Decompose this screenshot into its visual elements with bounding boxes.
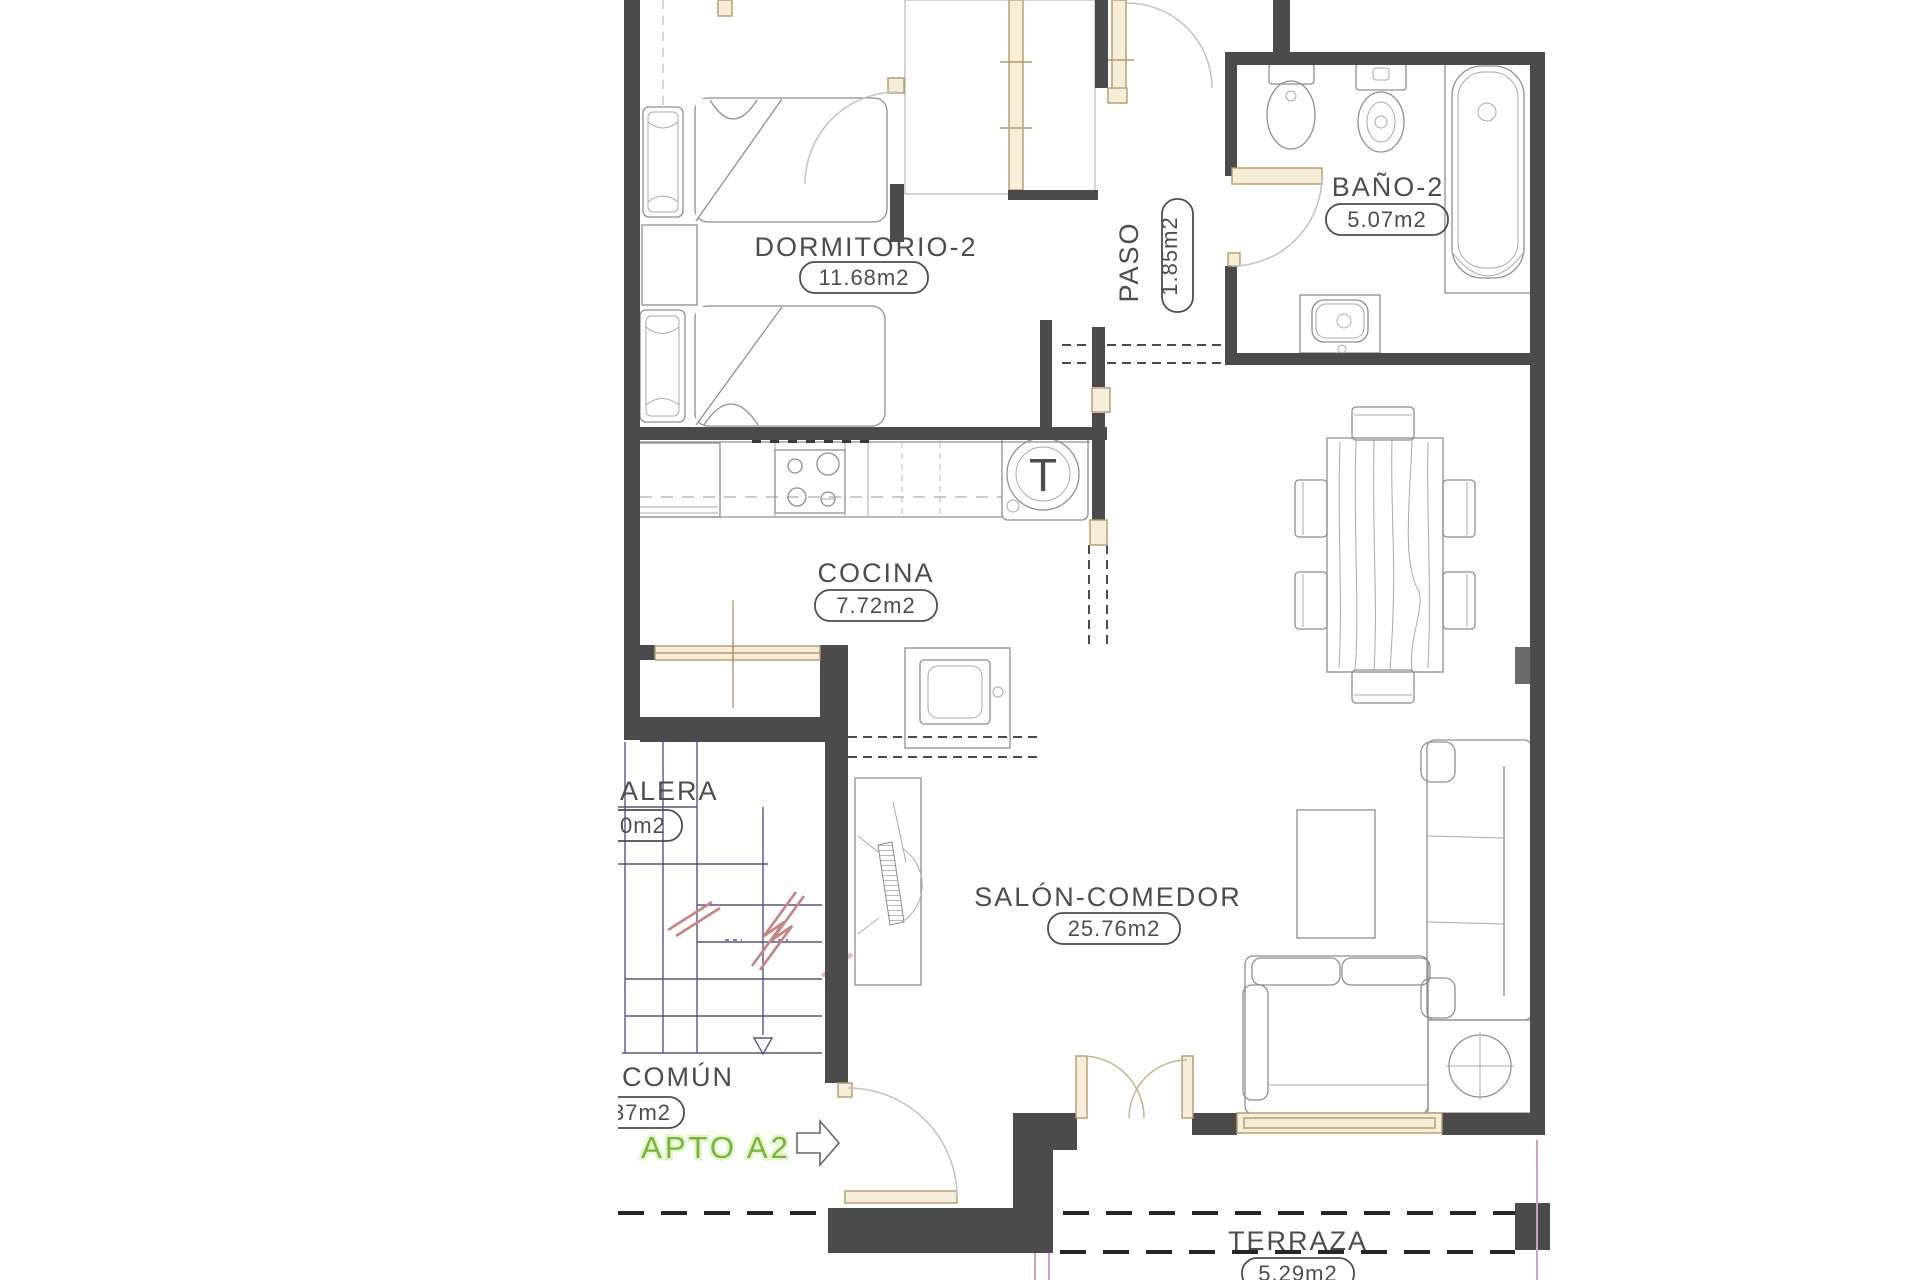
bathtub-curve — [1452, 252, 1524, 276]
salon-window — [1237, 1113, 1442, 1133]
chair-top — [1352, 407, 1414, 440]
entry-door-jamb — [838, 1083, 852, 1097]
wall-closet-base — [1008, 190, 1098, 200]
toilet-bowl — [1358, 92, 1404, 152]
stair-break-mark — [668, 892, 804, 970]
water-heater-label: T — [1029, 449, 1057, 501]
label-escalera-partial: ALERA — [620, 776, 719, 806]
water-heater-valve — [1007, 500, 1019, 512]
table-wood-grain — [1339, 440, 1429, 670]
french-door-arc-left — [1082, 1056, 1144, 1118]
area-comun-partial: 37m2 — [612, 1100, 671, 1125]
chair-bottom — [1352, 670, 1414, 703]
area-dormitorio: 11.68m2 — [819, 265, 910, 290]
wall-left — [624, 0, 640, 740]
tv-cone-top — [858, 836, 878, 852]
label-comun-partial: COMÚN — [622, 1061, 734, 1092]
chair-right-2 — [1443, 572, 1475, 629]
bedroom-door-jamb — [888, 78, 904, 93]
toilet-bowl-inner — [1367, 102, 1395, 142]
tv-cone-bottom — [858, 918, 879, 934]
paso-door-arc — [1127, 3, 1212, 88]
area-escalera-partial: 0m2 — [620, 813, 666, 838]
wall-paso-stub — [1040, 320, 1052, 433]
top-window-fragment — [718, 0, 732, 16]
tv-screen — [878, 842, 904, 925]
tv-arm — [893, 802, 906, 862]
bed-bottom-pillow-arc1 — [646, 327, 679, 334]
left-margin — [0, 0, 618, 1280]
label-salon: SALÓN-COMEDOR — [974, 881, 1242, 912]
area-paso: 1.85m2 — [1157, 216, 1182, 295]
sink-counter-outline — [905, 648, 1010, 748]
wall-kitchen-window-stub — [640, 645, 655, 660]
paso-shelf — [1112, 0, 1126, 98]
fridge — [638, 443, 720, 517]
kitchen-sink-tap — [993, 687, 1003, 697]
joinery — [655, 3, 1442, 1203]
label-terraza: TERRAZA — [1228, 1226, 1368, 1256]
wall-paso-left-top — [1095, 0, 1108, 88]
sofa-bottom-cushion2 — [1342, 958, 1430, 985]
wall-terraza-block — [1515, 1203, 1550, 1250]
toilet-drain — [1375, 116, 1387, 128]
chair-left-2 — [1295, 572, 1327, 629]
sofa-bottom-body — [1245, 956, 1428, 1114]
entry-door-arc — [848, 1088, 957, 1197]
bathtub-basin — [1458, 72, 1518, 268]
area-salon: 25.76m2 — [1068, 916, 1161, 941]
wall-bath-left-top — [1225, 52, 1237, 176]
wall-bath-bottom — [1237, 353, 1530, 365]
entry-arrow-icon — [797, 1121, 839, 1165]
bath-door-arc — [1232, 176, 1322, 266]
sofa-right-cushion-split1 — [1427, 836, 1504, 838]
stove — [775, 450, 845, 513]
dining-set — [1295, 407, 1475, 703]
nightstand — [642, 225, 697, 305]
bath-sink-drain — [1337, 314, 1351, 328]
area-terraza: 5.29m2 — [1258, 1261, 1337, 1280]
chair-left-1 — [1295, 480, 1327, 537]
apto-label: APTO A2 — [641, 1130, 791, 1165]
paso-door-jamb — [1108, 88, 1127, 103]
kitchen-sink-counter — [905, 648, 1010, 748]
wall-bedroom-kitchen — [637, 427, 1107, 440]
wall-paso-left-mid2 — [1092, 413, 1105, 520]
bed-top-pillow-inner — [648, 112, 678, 212]
bed-bottom-pillow — [640, 310, 685, 422]
wall-right — [1530, 52, 1545, 1135]
coffee-table — [1297, 810, 1375, 938]
wall-stair-top — [640, 717, 848, 742]
wall-bottom-pillar — [1013, 1113, 1053, 1253]
living-furniture — [1243, 740, 1532, 1114]
sofa-right-cushion-split2 — [1427, 922, 1504, 924]
french-door-leaf-right — [1182, 1056, 1193, 1118]
kitchen-counter: T — [638, 432, 1090, 520]
area-cocina: 7.72m2 — [836, 593, 915, 618]
wall-bath-left-bottom — [1225, 266, 1237, 365]
chair-right-1 — [1443, 480, 1475, 537]
wall-bottom-right — [1442, 1113, 1530, 1135]
bed-bottom — [640, 306, 885, 426]
french-door-leaf-left — [1076, 1056, 1087, 1118]
kitchen-opening-jamb — [1090, 520, 1107, 545]
sofa-bottom-arm — [1243, 985, 1268, 1100]
bed-top-pillow-arc2 — [648, 196, 678, 202]
bed-bottom-pillow-inner — [646, 316, 679, 416]
sofa-bottom-cushion1 — [1252, 958, 1340, 985]
bathroom-fixtures — [1267, 58, 1532, 353]
label-bano: BAÑO-2 — [1332, 171, 1445, 202]
paso-mid-jamb — [1092, 388, 1110, 412]
sofa-right-arm-top — [1421, 742, 1455, 782]
bidet-tap — [1286, 91, 1296, 101]
toilet-button — [1373, 68, 1389, 80]
entry-door-leaf — [845, 1191, 957, 1203]
bath-sink-bowl-inner — [1316, 304, 1364, 338]
right-margin — [1552, 0, 1920, 1280]
bedroom-door-arc — [805, 92, 897, 184]
kitchen-sink-inner — [928, 666, 982, 718]
label-paso: PASO — [1114, 221, 1144, 302]
floor-plan-page: T — [0, 0, 1920, 1280]
label-dormitorio: DORMITORIO-2 — [754, 232, 977, 262]
bath-door-leaf — [1232, 168, 1322, 184]
wall-bath-top — [1225, 52, 1530, 65]
bed-bottom-pillow-arc2 — [646, 399, 679, 406]
closet-rail — [1009, 0, 1023, 190]
tv-unit — [855, 778, 922, 985]
wall-bottom-pillar-ext — [1053, 1113, 1077, 1150]
wall-paso-left-mid1 — [1092, 327, 1105, 387]
stair-direction-arrow — [754, 1038, 772, 1054]
bed-bottom-fold-arc — [704, 404, 758, 425]
wall-bath-top-stub — [1273, 0, 1290, 52]
bed-top — [643, 98, 887, 222]
bath-sink-tap — [1338, 345, 1346, 353]
wall-pilaster — [1515, 647, 1530, 684]
bathtub-drain — [1478, 103, 1496, 121]
floor-plan-svg: T — [0, 0, 1920, 1280]
bed-top-pillow — [643, 107, 683, 217]
bath-door-jamb — [1228, 253, 1240, 266]
label-cocina: COCINA — [817, 558, 934, 588]
stove-burner-2 — [817, 453, 839, 475]
stove-burner-1 — [788, 459, 802, 473]
closet-outline — [905, 0, 1095, 194]
open-passages — [848, 345, 1222, 757]
wall-stair-right — [825, 742, 848, 1083]
wall-bottom-mid — [1192, 1113, 1237, 1135]
bathtub-rim — [1452, 66, 1524, 278]
area-bano: 5.07m2 — [1347, 207, 1426, 232]
bed-top-pillow-arc1 — [648, 122, 678, 128]
dining-table — [1327, 438, 1443, 672]
